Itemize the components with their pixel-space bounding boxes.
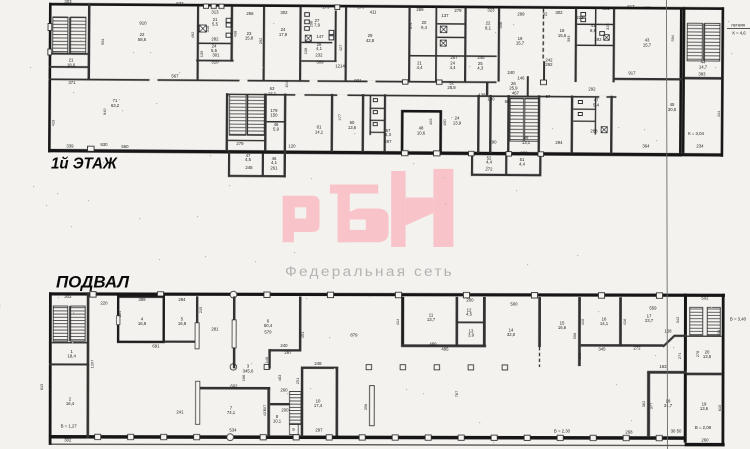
svg-text:168: 168 <box>664 329 672 334</box>
svg-text:50: 50 <box>505 99 510 104</box>
svg-text:5,4: 5,4 <box>593 103 600 108</box>
svg-text:150: 150 <box>270 113 278 118</box>
svg-text:13,9: 13,9 <box>453 121 462 126</box>
svg-text:8,6: 8,6 <box>590 28 597 33</box>
svg-text:К = 4,6: К = 4,6 <box>732 31 746 36</box>
svg-text:279: 279 <box>322 5 330 10</box>
svg-text:8,1: 8,1 <box>485 26 492 31</box>
svg-text:14,1: 14,1 <box>600 321 609 326</box>
svg-text:567: 567 <box>171 73 179 78</box>
svg-text:298: 298 <box>309 21 314 28</box>
svg-text:221: 221 <box>576 15 584 20</box>
svg-text:384: 384 <box>117 310 122 317</box>
svg-text:371: 371 <box>68 80 76 85</box>
svg-text:416: 416 <box>622 319 627 326</box>
svg-text:402: 402 <box>428 118 433 125</box>
svg-text:506: 506 <box>572 333 577 340</box>
svg-text:4,4: 4,4 <box>519 161 526 166</box>
svg-text:534: 534 <box>229 428 237 433</box>
svg-text:58,6: 58,6 <box>138 37 147 42</box>
svg-text:4,1: 4,1 <box>271 160 278 165</box>
svg-text:284: 284 <box>178 297 186 302</box>
svg-text:200: 200 <box>281 408 289 413</box>
svg-text:летняя: летняя <box>731 23 745 28</box>
svg-text:9,4: 9,4 <box>421 25 428 30</box>
svg-text:594: 594 <box>670 34 675 41</box>
svg-text:302: 302 <box>64 438 72 443</box>
svg-text:30,5: 30,5 <box>668 107 677 112</box>
svg-text:92: 92 <box>543 11 548 16</box>
svg-text:13,7: 13,7 <box>427 317 436 322</box>
svg-text:120: 120 <box>288 144 296 149</box>
svg-text:310: 310 <box>211 60 219 65</box>
svg-text:63,2: 63,2 <box>111 103 120 108</box>
svg-text:879: 879 <box>350 333 358 338</box>
svg-text:617: 617 <box>627 4 635 9</box>
svg-text:135: 135 <box>199 51 204 58</box>
svg-text:15,7: 15,7 <box>643 43 652 48</box>
svg-text:13,1: 13,1 <box>522 140 531 145</box>
svg-text:272: 272 <box>633 346 641 351</box>
svg-text:299: 299 <box>517 12 525 17</box>
svg-text:4,4: 4,4 <box>486 160 493 165</box>
svg-text:147: 147 <box>316 34 324 39</box>
svg-text:146: 146 <box>264 357 269 364</box>
svg-text:232: 232 <box>315 53 323 58</box>
svg-text:14,7: 14,7 <box>699 64 708 69</box>
svg-text:261: 261 <box>270 166 278 171</box>
svg-text:593: 593 <box>566 36 571 43</box>
svg-text:356: 356 <box>363 404 368 411</box>
svg-text:16,4: 16,4 <box>66 401 75 406</box>
svg-text:279: 279 <box>236 141 244 146</box>
svg-text:4,4: 4,4 <box>417 65 424 70</box>
svg-text:615: 615 <box>717 405 722 412</box>
svg-text:18,4: 18,4 <box>68 354 77 359</box>
svg-text:74,1: 74,1 <box>227 410 236 415</box>
svg-text:1207: 1207 <box>90 360 95 369</box>
svg-text:287: 287 <box>384 139 392 144</box>
svg-text:215: 215 <box>198 307 203 314</box>
svg-text:251: 251 <box>295 378 300 385</box>
svg-text:272: 272 <box>485 166 493 171</box>
svg-text:414: 414 <box>395 318 400 325</box>
svg-text:477: 477 <box>337 114 342 121</box>
svg-text:17,4: 17,4 <box>314 403 323 408</box>
svg-text:607: 607 <box>643 6 651 11</box>
svg-text:917: 917 <box>628 70 636 75</box>
svg-text:138: 138 <box>303 48 308 55</box>
svg-text:282: 282 <box>211 36 219 41</box>
svg-text:16,6: 16,6 <box>558 325 567 330</box>
svg-text:42,8: 42,8 <box>366 38 375 43</box>
svg-text:572: 572 <box>176 1 184 6</box>
svg-text:303: 303 <box>64 0 72 4</box>
svg-text:492: 492 <box>190 32 195 39</box>
svg-text:190: 190 <box>487 96 495 101</box>
svg-text:200: 200 <box>466 298 474 303</box>
svg-text:290: 290 <box>489 139 497 144</box>
svg-text:4,5: 4,5 <box>245 157 252 162</box>
svg-text:910: 910 <box>139 20 147 25</box>
svg-text:266: 266 <box>246 11 254 16</box>
svg-text:342: 342 <box>675 317 680 324</box>
svg-text:15,8: 15,8 <box>245 36 254 41</box>
svg-text:4,3: 4,3 <box>477 66 484 71</box>
svg-text:451: 451 <box>300 332 305 339</box>
svg-text:483: 483 <box>277 375 282 382</box>
svg-text:303: 303 <box>64 294 72 299</box>
svg-text:1й ЭТАЖ: 1й ЭТАЖ <box>51 156 119 173</box>
svg-text:297: 297 <box>284 350 292 355</box>
svg-text:5,5: 5,5 <box>212 22 219 27</box>
svg-text:560: 560 <box>121 144 129 149</box>
svg-text:23,7: 23,7 <box>645 318 654 323</box>
svg-text:364: 364 <box>642 143 650 148</box>
svg-text:166: 166 <box>577 353 582 360</box>
svg-text:502: 502 <box>701 296 709 301</box>
svg-text:4,4: 4,4 <box>450 65 457 70</box>
svg-text:234: 234 <box>696 143 704 148</box>
svg-text:410: 410 <box>580 318 585 325</box>
svg-text:5,3: 5,3 <box>385 132 392 137</box>
svg-text:313: 313 <box>211 9 219 14</box>
svg-text:30 50: 30 50 <box>671 429 682 434</box>
svg-text:940: 940 <box>102 108 107 115</box>
svg-text:240: 240 <box>507 70 515 75</box>
svg-text:В = 1,27: В = 1,27 <box>61 424 78 429</box>
svg-text:13,6: 13,6 <box>348 125 357 130</box>
svg-text:389: 389 <box>138 297 146 302</box>
svg-text:480: 480 <box>429 342 437 347</box>
svg-text:3,9: 3,9 <box>468 333 475 338</box>
svg-text:691: 691 <box>152 344 160 349</box>
svg-text:930: 930 <box>100 142 108 147</box>
svg-text:257: 257 <box>450 55 458 60</box>
svg-text:146: 146 <box>517 76 525 81</box>
svg-text:16,9: 16,9 <box>138 321 147 326</box>
svg-text:196: 196 <box>241 375 246 382</box>
svg-text:292: 292 <box>258 38 263 45</box>
svg-text:241: 241 <box>176 410 184 415</box>
svg-text:787: 787 <box>454 391 459 398</box>
svg-text:163: 163 <box>659 364 667 369</box>
svg-text:31,7: 31,7 <box>664 403 673 408</box>
svg-text:297: 297 <box>315 428 323 433</box>
svg-text:467: 467 <box>512 91 520 96</box>
svg-text:248: 248 <box>245 165 253 170</box>
svg-text:594: 594 <box>100 38 105 45</box>
svg-text:931: 931 <box>354 78 362 83</box>
svg-text:5,9: 5,9 <box>273 126 280 131</box>
svg-text:245: 245 <box>477 55 485 60</box>
svg-text:7,9: 7,9 <box>314 23 321 28</box>
svg-text:559: 559 <box>649 306 657 311</box>
svg-text:1214: 1214 <box>335 64 345 69</box>
svg-text:248: 248 <box>314 361 322 366</box>
svg-text:137: 137 <box>441 13 449 18</box>
svg-text:К = 3,04: К = 3,04 <box>688 131 704 136</box>
svg-text:437: 437 <box>262 410 267 417</box>
svg-text:438: 438 <box>233 31 238 38</box>
svg-text:377: 377 <box>649 403 654 410</box>
svg-text:411: 411 <box>370 9 377 14</box>
svg-text:419: 419 <box>51 120 56 127</box>
svg-text:28,8: 28,8 <box>447 85 456 90</box>
svg-text:14,1: 14,1 <box>315 129 324 134</box>
svg-text:292: 292 <box>594 37 602 42</box>
svg-text:302: 302 <box>555 10 563 15</box>
svg-text:13,5: 13,5 <box>703 354 712 359</box>
svg-text:268: 268 <box>590 129 598 134</box>
svg-text:427: 427 <box>338 45 343 52</box>
svg-text:345: 345 <box>598 347 606 352</box>
svg-text:570: 570 <box>264 330 272 335</box>
svg-text:274: 274 <box>677 352 682 359</box>
svg-text:4,1: 4,1 <box>316 46 323 51</box>
svg-text:15,7: 15,7 <box>516 41 525 46</box>
svg-text:281: 281 <box>211 327 219 332</box>
svg-text:260: 260 <box>701 438 709 443</box>
svg-text:309: 309 <box>316 60 324 65</box>
svg-text:480: 480 <box>442 119 447 126</box>
svg-text:279: 279 <box>454 8 462 13</box>
svg-text:В = 2,08: В = 2,08 <box>695 425 712 430</box>
svg-text:В = 3,40: В = 3,40 <box>730 317 747 322</box>
svg-text:374: 374 <box>408 22 413 29</box>
svg-text:10,1: 10,1 <box>273 419 282 424</box>
svg-text:18,6: 18,6 <box>67 62 76 67</box>
svg-text:325: 325 <box>605 23 610 30</box>
svg-text:323: 323 <box>487 8 495 13</box>
svg-text:17,9: 17,9 <box>279 32 288 37</box>
svg-text:602: 602 <box>230 384 238 389</box>
svg-text:10,6: 10,6 <box>417 131 426 136</box>
svg-text:339: 339 <box>66 144 74 149</box>
svg-text:615: 615 <box>39 384 44 391</box>
svg-text:292: 292 <box>588 87 596 92</box>
svg-text:13,6: 13,6 <box>700 406 709 411</box>
svg-text:4,5: 4,5 <box>466 312 473 317</box>
svg-text:383: 383 <box>698 71 706 76</box>
svg-text:495: 495 <box>441 347 449 352</box>
svg-text:318: 318 <box>205 26 210 33</box>
svg-text:260: 260 <box>280 388 288 393</box>
svg-text:292: 292 <box>545 62 553 67</box>
svg-text:240: 240 <box>280 343 288 348</box>
svg-text:294: 294 <box>555 140 563 145</box>
svg-text:301: 301 <box>602 6 610 11</box>
svg-text:50,4: 50,4 <box>264 323 273 328</box>
svg-text:12,1: 12,1 <box>268 91 277 96</box>
svg-text:356: 356 <box>498 22 503 29</box>
svg-text:В = 2,30: В = 2,30 <box>554 429 571 434</box>
svg-text:Федеральная сеть: Федеральная сеть <box>285 264 454 279</box>
svg-text:97: 97 <box>546 94 551 99</box>
svg-text:270: 270 <box>357 4 365 9</box>
svg-text:345,6: 345,6 <box>243 369 254 374</box>
svg-text:16,9: 16,9 <box>178 321 187 326</box>
svg-text:220: 220 <box>100 301 108 306</box>
svg-text:500: 500 <box>510 302 518 307</box>
svg-text:154: 154 <box>284 80 289 87</box>
svg-text:302: 302 <box>280 10 288 15</box>
svg-text:362: 362 <box>641 401 646 408</box>
svg-text:278: 278 <box>695 351 700 358</box>
svg-text:414: 414 <box>716 110 721 117</box>
svg-text:268: 268 <box>625 430 633 435</box>
svg-text:434: 434 <box>716 329 721 336</box>
svg-text:282: 282 <box>520 151 528 156</box>
svg-text:138: 138 <box>478 93 486 98</box>
svg-text:ПОДВАЛ: ПОДВАЛ <box>56 274 130 292</box>
svg-text:301: 301 <box>212 53 220 58</box>
svg-text:269: 269 <box>416 7 424 12</box>
svg-text:32,0: 32,0 <box>507 332 516 337</box>
